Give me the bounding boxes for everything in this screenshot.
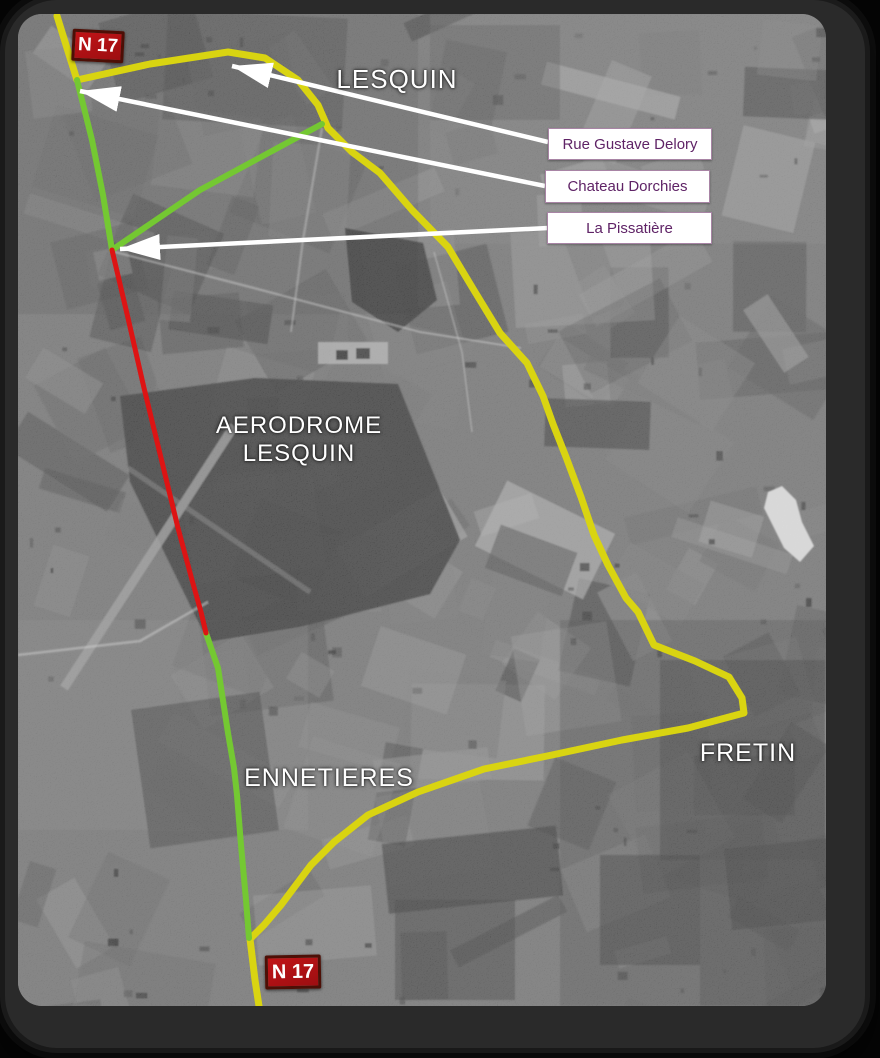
road-badge-n17-top: N 17	[71, 29, 125, 64]
label-aerodrome-line2: LESQUIN	[216, 440, 382, 468]
callout-chateau-dorchies: Chateau Dorchies	[545, 170, 710, 203]
label-ennetieres: ENNETIERES	[244, 764, 414, 793]
callout-la-pissatiere: La Pissatière	[547, 212, 712, 244]
label-lesquin: LESQUIN	[336, 64, 457, 95]
callout-rue-gustave-delory: Rue Gustave Delory	[548, 128, 712, 160]
label-aerodrome-lesquin: AERODROME LESQUIN	[216, 412, 382, 468]
aerial-photo: LESQUIN AERODROME LESQUIN ENNETIERES FRE…	[18, 14, 826, 1006]
label-aerodrome-line1: AERODROME	[216, 412, 382, 440]
road-badge-n17-bottom: N 17	[265, 955, 322, 990]
map-canvas	[18, 14, 826, 1006]
photo-frame: LESQUIN AERODROME LESQUIN ENNETIERES FRE…	[5, 0, 865, 1048]
label-fretin: FRETIN	[700, 739, 796, 768]
